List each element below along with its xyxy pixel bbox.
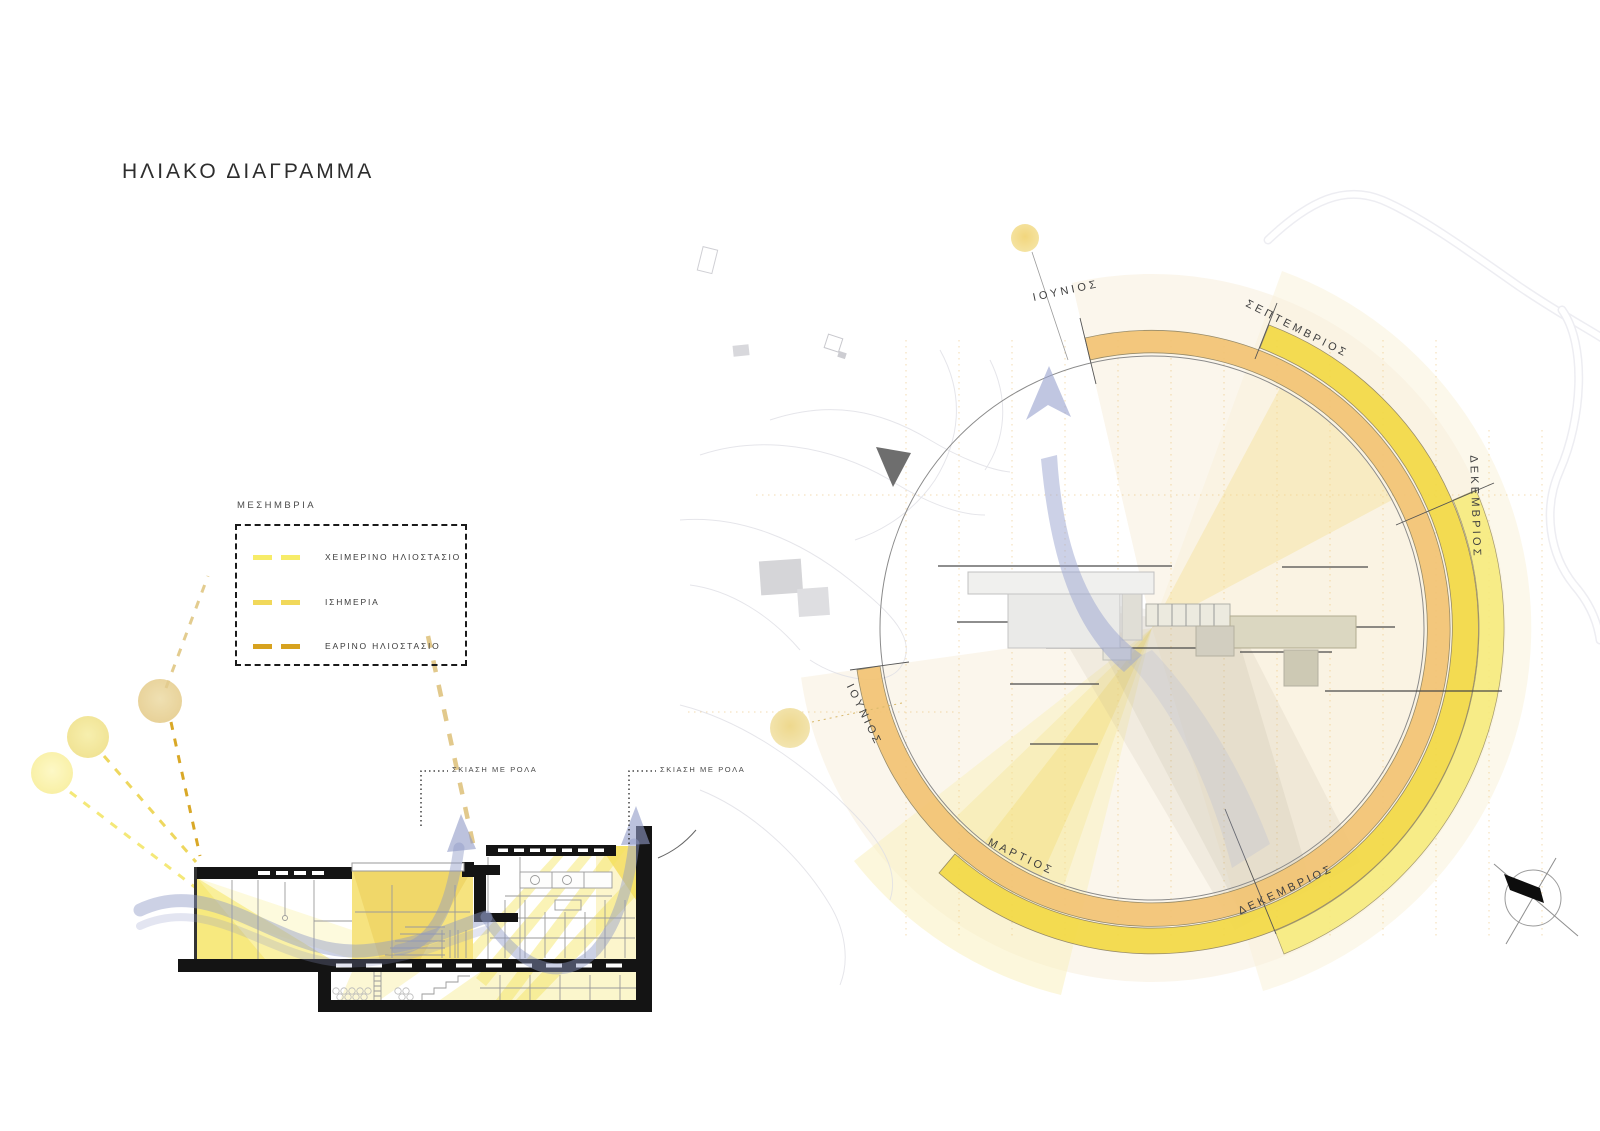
page-title: ΗΛΙΑΚΟ ΔΙΑΓΡΑΜΜΑ [122, 160, 374, 184]
equinox-dash-icon [281, 600, 300, 605]
spring-solstice-dash-icon [253, 644, 272, 649]
legend-header: ΜΕΣΗΜΒΡΙΑ [237, 500, 316, 511]
sun-winter-icon [31, 752, 73, 794]
legend-item-spring-solstice: ΕΑΡΙΝΟ ΗΛΙΟΣΤΑΣΙΟ [253, 641, 441, 651]
equinox-dash-icon [253, 600, 272, 605]
solar-diagram-sheet: ΗΛΙΑΚΟ ΔΙΑΓΡΑΜΜΑ ΜΕΣΗΜΒΡΙΑ ΧΕΙΜΕΡΙΝΟ ΗΛΙ… [0, 0, 1600, 1131]
right-wall [636, 826, 652, 1012]
sun-equinox-icon [67, 716, 109, 758]
plan-east-wing [1230, 616, 1356, 648]
plan-roof-slab [968, 572, 1154, 594]
compass-icon [1494, 858, 1578, 944]
legend-box: ΧΕΙΜΕΡΙΝΟ ΗΛΙΟΣΤΑΣΙΟ ΙΣΗΜΕΡΙΑ ΕΑΡΙΝΟ ΗΛΙ… [235, 524, 467, 666]
legend-item-label: ΧΕΙΜΕΡΙΝΟ ΗΛΙΟΣΤΑΣΙΟ [325, 552, 461, 562]
legend-item-label: ΙΣΗΜΕΡΙΑ [325, 597, 380, 607]
left-roof-slab [194, 867, 352, 879]
legend-item-label: ΕΑΡΙΝΟ ΗΛΙΟΣΤΑΣΙΟ [325, 641, 441, 651]
mid-roof-slab [352, 863, 464, 871]
winter-solstice-dash-icon [253, 555, 272, 560]
exhaust-swoosh [658, 830, 696, 858]
legend-item-equinox: ΙΣΗΜΕΡΙΑ [253, 597, 380, 607]
winter-solstice-dash-icon [281, 555, 300, 560]
section-suns [31, 679, 182, 794]
airflow-arrowhead-icon [621, 806, 650, 845]
basement-slab [318, 1000, 648, 1012]
legend-item-winter-solstice: ΧΕΙΜΕΡΙΝΟ ΗΛΙΟΣΤΑΣΙΟ [253, 552, 461, 562]
skylight-ray [428, 636, 474, 848]
shading-label-left: ΣΚΙΑΣΗ ΜΕ ΡΟΛΑ [452, 765, 537, 774]
shading-label-right: ΣΚΙΑΣΗ ΜΕ ΡΟΛΑ [660, 765, 745, 774]
plan-pergola [1146, 604, 1230, 626]
spring-solstice-dash-icon [281, 644, 300, 649]
sun-path-diagram [680, 194, 1600, 995]
sun-summer-icon [138, 679, 182, 723]
